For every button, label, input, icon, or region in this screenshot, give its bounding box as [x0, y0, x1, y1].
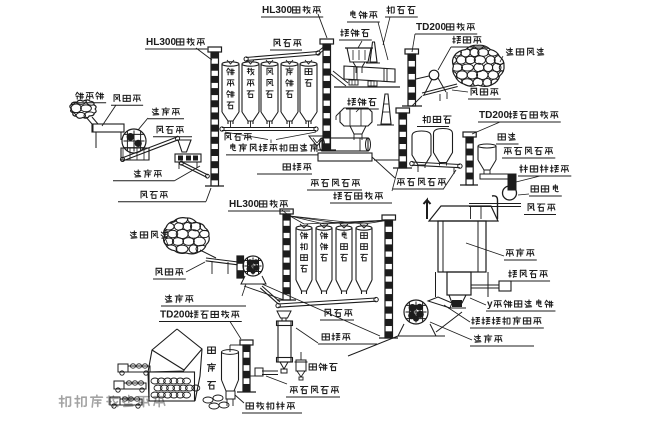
svg-text:TD200: TD200: [160, 309, 190, 320]
svg-text:TD200: TD200: [479, 110, 509, 121]
svg-text:HL300: HL300: [262, 5, 292, 16]
svg-text:TD200: TD200: [416, 22, 446, 33]
svg-text:HL300: HL300: [229, 199, 259, 210]
svg-text:HL300: HL300: [146, 37, 176, 48]
svg-text:y: y: [487, 299, 493, 310]
